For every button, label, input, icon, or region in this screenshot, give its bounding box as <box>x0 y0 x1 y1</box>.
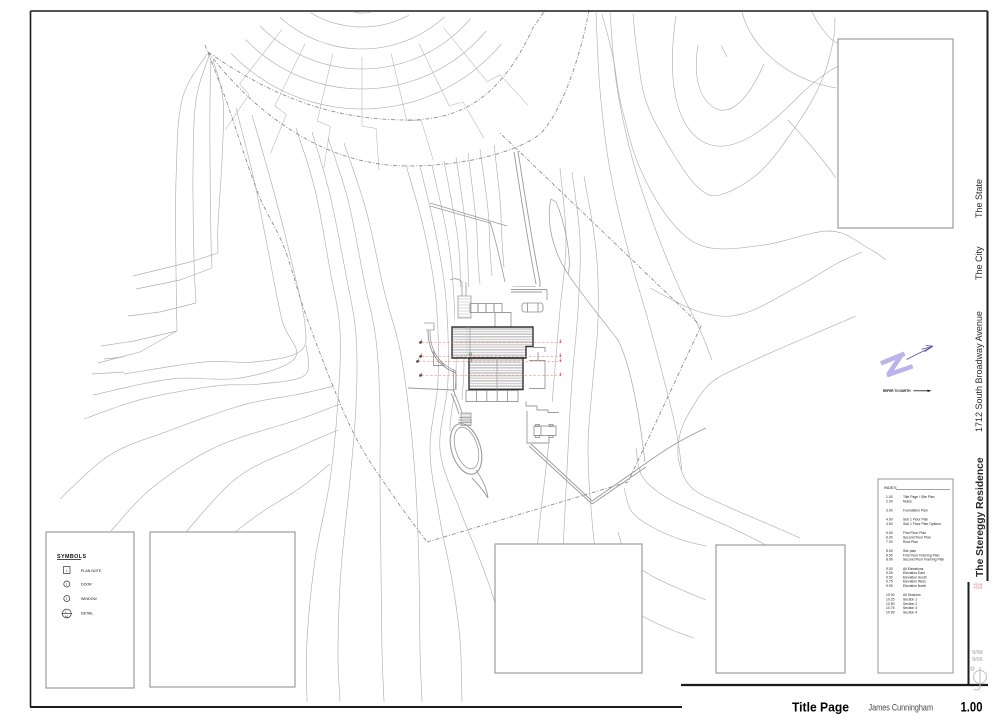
svg-text:7.00: 7.00 <box>886 540 893 544</box>
svg-text:3.00: 3.00 <box>886 509 893 513</box>
svg-text:Section 4: Section 4 <box>903 610 917 614</box>
svg-text:WINDOW: WINDOW <box>81 597 97 601</box>
svg-text:The State: The State <box>974 179 984 218</box>
svg-text:9/98: 9/98 <box>972 650 983 656</box>
svg-text:PLAN NOTE: PLAN NOTE <box>81 569 102 573</box>
svg-text:1: 1 <box>66 582 68 586</box>
svg-text:Roof Plan: Roof Plan <box>903 540 918 544</box>
svg-text:Sub 1 Floor Plan Options: Sub 1 Floor Plan Options <box>903 522 941 526</box>
svg-text:4.50: 4.50 <box>886 522 893 526</box>
svg-text:Notes: Notes <box>903 499 912 503</box>
svg-text:1712 South Broadway Avenue: 1712 South Broadway Avenue <box>974 311 984 432</box>
svg-text:10.99: 10.99 <box>886 610 895 614</box>
svg-text:Elevation North: Elevation North <box>903 584 926 588</box>
svg-text:1: 1 <box>66 597 68 601</box>
svg-text:SYMBOLS: SYMBOLS <box>57 554 86 560</box>
svg-text:REFER TO NORTH: REFER TO NORTH <box>883 389 911 393</box>
svg-text:DETAIL: DETAIL <box>81 612 93 616</box>
svg-text:The Stereggy Residence: The Stereggy Residence <box>975 457 986 577</box>
svg-text:DOOR: DOOR <box>81 583 92 587</box>
svg-text:Foundation Plan: Foundation Plan <box>903 509 928 513</box>
svg-text:James Cunningham: James Cunningham <box>869 703 934 713</box>
svg-text:A1: A1 <box>65 615 69 619</box>
svg-text:9/06: 9/06 <box>972 657 983 663</box>
svg-text:Second Floor Framing Plan: Second Floor Framing Plan <box>903 558 944 562</box>
svg-text:1: 1 <box>66 569 68 573</box>
svg-text:2.00: 2.00 <box>886 499 893 503</box>
svg-text:9.99: 9.99 <box>886 584 893 588</box>
svg-text:4/12/98: 4/12/98 <box>974 586 983 590</box>
svg-text:The City: The City <box>974 246 984 280</box>
svg-text:Title Page: Title Page <box>792 700 849 715</box>
svg-text:8.99: 8.99 <box>886 558 893 562</box>
svg-text:INDEX:: INDEX: <box>884 485 897 490</box>
svg-text:1.00: 1.00 <box>961 700 983 715</box>
